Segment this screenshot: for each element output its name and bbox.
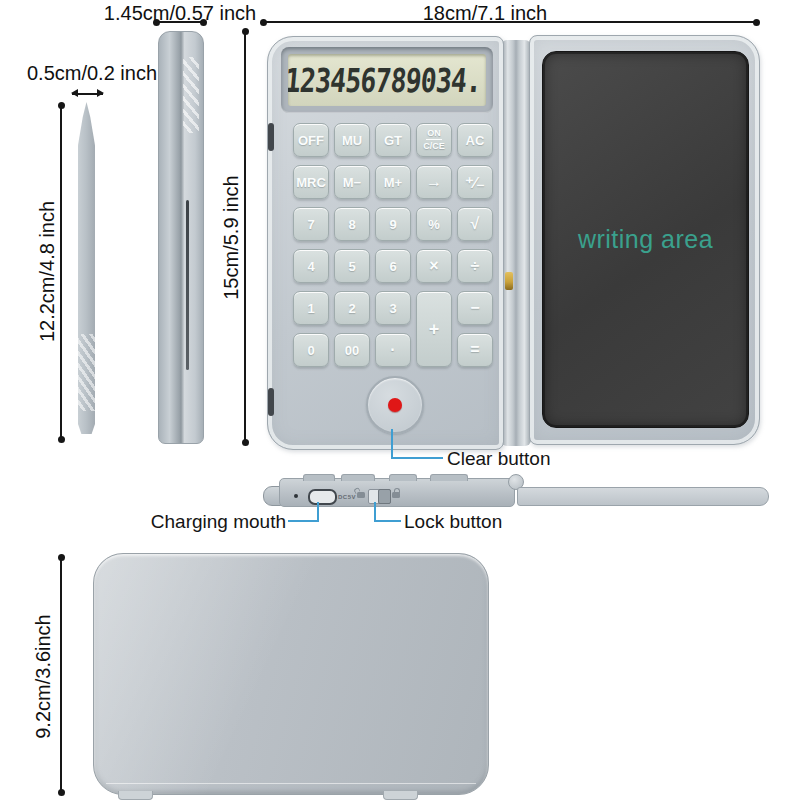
calc-key-off: OFF — [293, 123, 329, 157]
charging-mouth-label: Charging mouth — [146, 511, 286, 533]
calc-key-gt: GT — [375, 123, 411, 157]
callout-clear-line-h — [391, 457, 443, 459]
calc-key-5: 5 — [334, 249, 370, 283]
writing-area-label: writing area — [578, 225, 713, 254]
calc-key-4: 4 — [293, 249, 329, 283]
calc-key-equals: = — [457, 333, 493, 367]
calc-key-9: 9 — [375, 207, 411, 241]
calculator-body: 123456789034. OFFMUGTONC/CEACMRCM−M+→⁺∕₋… — [267, 36, 504, 450]
dim-label-folded-height: 9.2cm/3.6inch — [32, 602, 55, 752]
clear-button-label: Clear button — [447, 448, 551, 470]
reset-hole — [294, 494, 298, 498]
hinge — [501, 40, 531, 446]
calc-key-multiply: × — [416, 249, 452, 283]
calc-key-2: 2 — [334, 291, 370, 325]
lock-icon — [392, 492, 400, 498]
edge-foot — [430, 474, 468, 481]
folded-seam — [106, 783, 476, 784]
dim-line-folded-height — [60, 556, 62, 794]
tablet-body: writing area — [529, 35, 760, 445]
stylus-slot — [186, 200, 189, 370]
tablet-edge-bar — [517, 487, 769, 506]
calc-lcd: 123456789034. — [288, 54, 486, 106]
callout-lock-line-h — [374, 520, 401, 522]
unlock-icon — [357, 492, 365, 498]
stylus-pen — [78, 102, 95, 434]
dim-label-stylus-length: 12.2cm/4.8 inch — [36, 192, 59, 352]
calc-key-minus: − — [457, 291, 493, 325]
hinge-pin — [505, 272, 513, 290]
folded-foot-left — [118, 791, 153, 800]
lcd-digits: 123456789034. — [288, 54, 483, 106]
folded-top-view — [93, 553, 489, 795]
usb-c-port — [308, 489, 337, 505]
calc-key-m-minus: M− — [334, 165, 370, 199]
calc-key-percent: % — [416, 207, 452, 241]
calc-key-decimal: · — [375, 333, 411, 367]
edge-foot — [341, 474, 375, 481]
dim-line-open-width — [262, 21, 758, 23]
calc-key-mu: MU — [334, 123, 370, 157]
dim-line-open-height — [244, 30, 246, 444]
calc-key-on-cce: ONC/CE — [416, 123, 452, 157]
edge-foot — [303, 474, 335, 481]
calc-key-m-plus: M+ — [375, 165, 411, 199]
callout-clear-line-v — [391, 429, 393, 459]
calc-key-plus-minus: ⁺∕₋ — [457, 165, 493, 199]
calc-key-ac: AC — [457, 123, 493, 157]
calc-key-divide: ÷ — [457, 249, 493, 283]
folded-foot-right — [383, 791, 418, 800]
left-edge-slot-top — [268, 123, 274, 151]
stylus-grip-texture — [78, 334, 95, 410]
clear-button-circle — [366, 376, 424, 434]
clear-red-dot — [388, 398, 402, 412]
calc-key-0: 0 — [293, 333, 329, 367]
calc-key-mrc: MRC — [293, 165, 329, 199]
edge-foot — [389, 474, 417, 481]
callout-charging-line-v — [317, 502, 319, 522]
calc-key-7: 7 — [293, 207, 329, 241]
device-edge-bar: DC5V — [279, 478, 515, 507]
callout-lock-line-v — [374, 502, 376, 522]
dim-label-open-height: 15cm/5.9 inch — [220, 168, 243, 308]
lock-slider-knob — [378, 489, 391, 504]
fold-grip-texture — [183, 57, 199, 133]
calc-display-recess: 123456789034. — [281, 47, 493, 113]
dim-label-stylus-width: 0.5cm/0.2 inch — [22, 62, 162, 85]
dc5v-label: DC5V — [338, 494, 356, 500]
calc-key-backspace: → — [416, 165, 452, 199]
callout-charging-line-h — [288, 520, 319, 522]
side-edge-view: DC5V — [256, 470, 771, 514]
left-edge-slot-bottom — [268, 388, 274, 416]
calc-key-3: 3 — [375, 291, 411, 325]
dim-line-folded-thickness — [155, 21, 205, 23]
product-annotation-image: 1.45cm/0.57 inch 0.5cm/0.2 inch 18cm/7.1… — [0, 0, 800, 800]
calc-key-00: 00 — [334, 333, 370, 367]
calc-key-6: 6 — [375, 249, 411, 283]
dim-line-stylus-length — [60, 104, 62, 441]
lock-slider — [368, 489, 391, 504]
lock-button-label: Lock button — [404, 511, 502, 533]
folded-side-view — [158, 31, 204, 444]
writing-screen: writing area — [542, 51, 749, 428]
calc-key-8: 8 — [334, 207, 370, 241]
dim-line-stylus-width — [72, 93, 103, 95]
keypad: OFFMUGTONC/CEACMRCM−M+→⁺∕₋789%√456×÷123+… — [293, 123, 493, 367]
calc-key-sqrt: √ — [457, 207, 493, 241]
calc-key-1: 1 — [293, 291, 329, 325]
calc-key-plus: + — [416, 291, 452, 367]
